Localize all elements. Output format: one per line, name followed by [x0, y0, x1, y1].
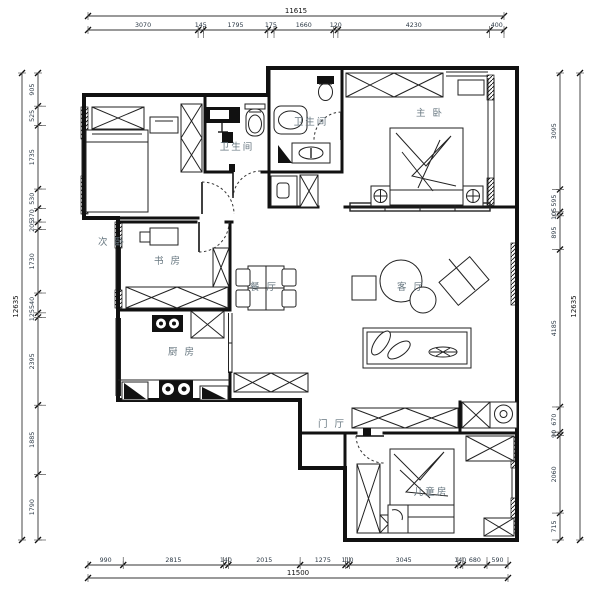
- dim-right-seg-3: 895: [551, 227, 558, 239]
- bed-master: [371, 128, 483, 206]
- dim-left-seg-9: 2395: [29, 353, 36, 369]
- dim-left-seg-4: 370: [29, 209, 36, 221]
- dim-left-seg-8: 125: [29, 309, 36, 321]
- floor-plan-canvas: 次 卧卫生间卫生间主 卧书 房餐 厅客 厅厨 房门 厅儿童房 116153070…: [0, 0, 600, 600]
- dim-bottom-seg-3: 2015: [256, 557, 272, 564]
- dim-left-seg-5: 205: [29, 220, 36, 232]
- dim-total-top: 11615: [285, 7, 307, 15]
- dim-bottom-seg-0: 990: [100, 557, 112, 564]
- room-label-entry-hall: 门 厅: [318, 418, 346, 430]
- dim-bottom-seg-1: 2815: [165, 557, 181, 564]
- dim-left-seg-10: 1885: [29, 432, 36, 448]
- room-label-children-room: 儿童房: [414, 486, 449, 498]
- room-label-secondary-bedroom: 次 卧: [98, 236, 126, 248]
- dim-total-right: 12635: [570, 295, 578, 317]
- room-label-master-bedroom: 主 卧: [416, 107, 444, 119]
- living-set: [352, 257, 489, 368]
- dim-left-seg-6: 1730: [29, 253, 36, 269]
- room-label-kitchen: 厨 房: [168, 346, 196, 358]
- room-label-living-room: 客 厅: [397, 281, 425, 293]
- dim-right: 1263530955951058954185670902060715: [551, 70, 584, 543]
- floor-plan-page: 次 卧卫生间卫生间主 卧书 房餐 厅客 厅厨 房门 厅儿童房 116153070…: [0, 0, 600, 600]
- dim-right-seg-4: 4185: [551, 320, 558, 336]
- dim-total-left: 12635: [12, 295, 20, 317]
- room-label-bathroom-master: 卫生间: [294, 116, 329, 128]
- dim-left-seg-7: 540: [29, 297, 36, 309]
- dim-top-seg-2: 1795: [228, 22, 244, 29]
- dim-left-seg-0: 905: [29, 84, 36, 96]
- dim-bottom: 115009902815140201512751103045140680590: [85, 557, 511, 582]
- dim-top-seg-4: 1660: [296, 22, 312, 29]
- dim-bottom-seg-9: 590: [491, 557, 503, 564]
- dim-left-seg-1: 525: [29, 110, 36, 122]
- dim-bottom-seg-8: 680: [469, 557, 481, 564]
- dim-top: 116153070145179517516601204230400: [85, 7, 507, 38]
- dim-bottom-seg-6: 3045: [396, 557, 412, 564]
- dim-top-seg-3: 175: [265, 22, 277, 29]
- dim-right-seg-5: 670: [551, 414, 558, 426]
- dim-right-seg-0: 3095: [551, 123, 558, 139]
- room-label-dining-room: 餐 厅: [250, 281, 278, 293]
- dim-left-seg-2: 1735: [29, 149, 36, 165]
- door-secondary-bedroom: [202, 182, 234, 214]
- dim-top-seg-0: 3070: [135, 22, 151, 29]
- door-bathroom-left: [229, 164, 261, 198]
- dim-right-seg-7: 2060: [551, 466, 558, 482]
- dim-left-seg-3: 530: [29, 193, 36, 205]
- dim-left: 1263590552517355303702051730540125239518…: [12, 70, 46, 543]
- bed-secondary: [86, 117, 178, 212]
- room-label-study: 书 房: [154, 255, 182, 267]
- door-entry: [356, 428, 384, 463]
- dim-bottom-seg-4: 1275: [315, 557, 331, 564]
- room-label-bathroom-left: 卫生间: [220, 141, 255, 153]
- dim-total-bottom: 11500: [287, 569, 309, 577]
- dim-right-seg-1: 595: [551, 195, 558, 207]
- dim-right-seg-6: 90: [551, 430, 558, 438]
- dim-right-seg-8: 715: [551, 521, 558, 533]
- dim-top-seg-6: 4230: [406, 22, 422, 29]
- dim-left-seg-11: 1790: [29, 499, 36, 515]
- bathroom-left-fixtures: [205, 104, 265, 143]
- study-desk: [140, 228, 178, 245]
- dim-top-seg-7: 400: [491, 22, 503, 29]
